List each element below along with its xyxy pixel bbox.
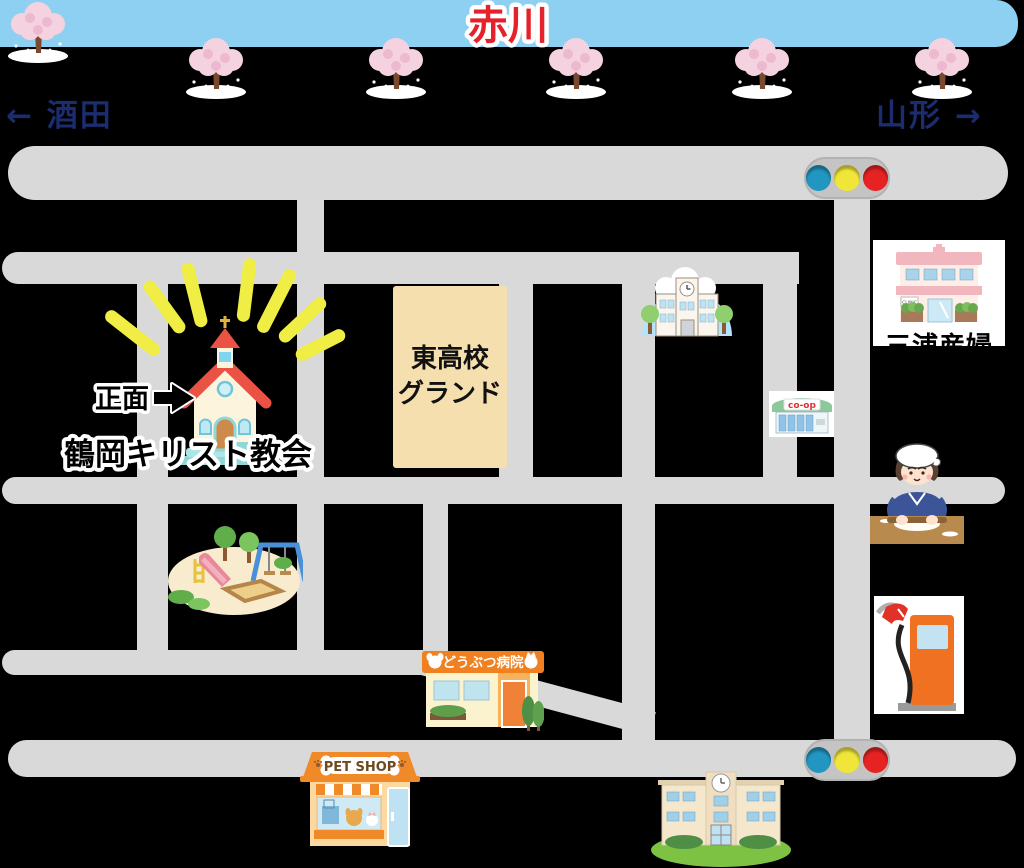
signal-blue-lamp (806, 165, 831, 191)
signal-yellow-lamp (834, 747, 859, 773)
clinic-icon: CLINIC (884, 244, 994, 328)
direction-label-yamagata: 山形 → (876, 90, 983, 135)
cherry-tree-icon (178, 36, 254, 100)
school-ground-label-line2: グランド (398, 380, 502, 409)
church-name-text: 鶴岡キリスト教会 (64, 437, 312, 473)
soba-maker-icon (870, 442, 964, 544)
front-label-text: 正面 (95, 384, 149, 415)
road-vertical-coop (763, 256, 797, 504)
signal-red-lamp (863, 747, 888, 773)
road-vertical-hospital (423, 482, 448, 672)
cherry-tree-icon (0, 0, 76, 64)
pet-shop-icon: PET SHOP (298, 744, 422, 848)
signal-yellow-lamp (834, 165, 859, 191)
playground-icon (165, 517, 303, 621)
road-fourth (2, 650, 439, 675)
river-name-text: 赤川 (468, 3, 548, 49)
road-vertical-east (834, 160, 870, 772)
signal-blue-lamp (806, 747, 831, 773)
gas-pump-icon (874, 597, 964, 715)
cherry-tree-icon (724, 36, 800, 100)
traffic-light-icon (804, 157, 890, 199)
clinic-name-label: 三浦産婦 (873, 326, 1005, 346)
church-front-label: 正面 (88, 376, 206, 420)
traffic-light-icon (804, 739, 890, 781)
animal-hospital-sign-text: どうぶつ病院 (443, 654, 524, 671)
animal-hospital-icon: どうぶつ病院 (422, 645, 544, 735)
coop-store-icon: co-op (770, 393, 834, 435)
access-map: 赤川 ← 酒田 山形 → 東高校 グランド (0, 0, 1024, 868)
direction-label-sakata: ← 酒田 (6, 90, 113, 135)
school-icon (636, 256, 738, 342)
school-building-icon (650, 768, 792, 868)
front-arrow-icon (154, 384, 194, 412)
school-ground-area: 東高校 グランド (393, 286, 507, 468)
pet-shop-sign-text: PET SHOP (324, 760, 397, 775)
signal-red-lamp (863, 165, 888, 191)
school-ground-label-line1: 東高校 (411, 345, 489, 374)
church-name-label: 鶴岡キリスト教会 (48, 432, 328, 476)
clinic-card: CLINIC 三浦産婦 (873, 240, 1005, 346)
coop-sign-text: co-op (788, 401, 816, 411)
river-label: 赤川 (408, 0, 608, 52)
